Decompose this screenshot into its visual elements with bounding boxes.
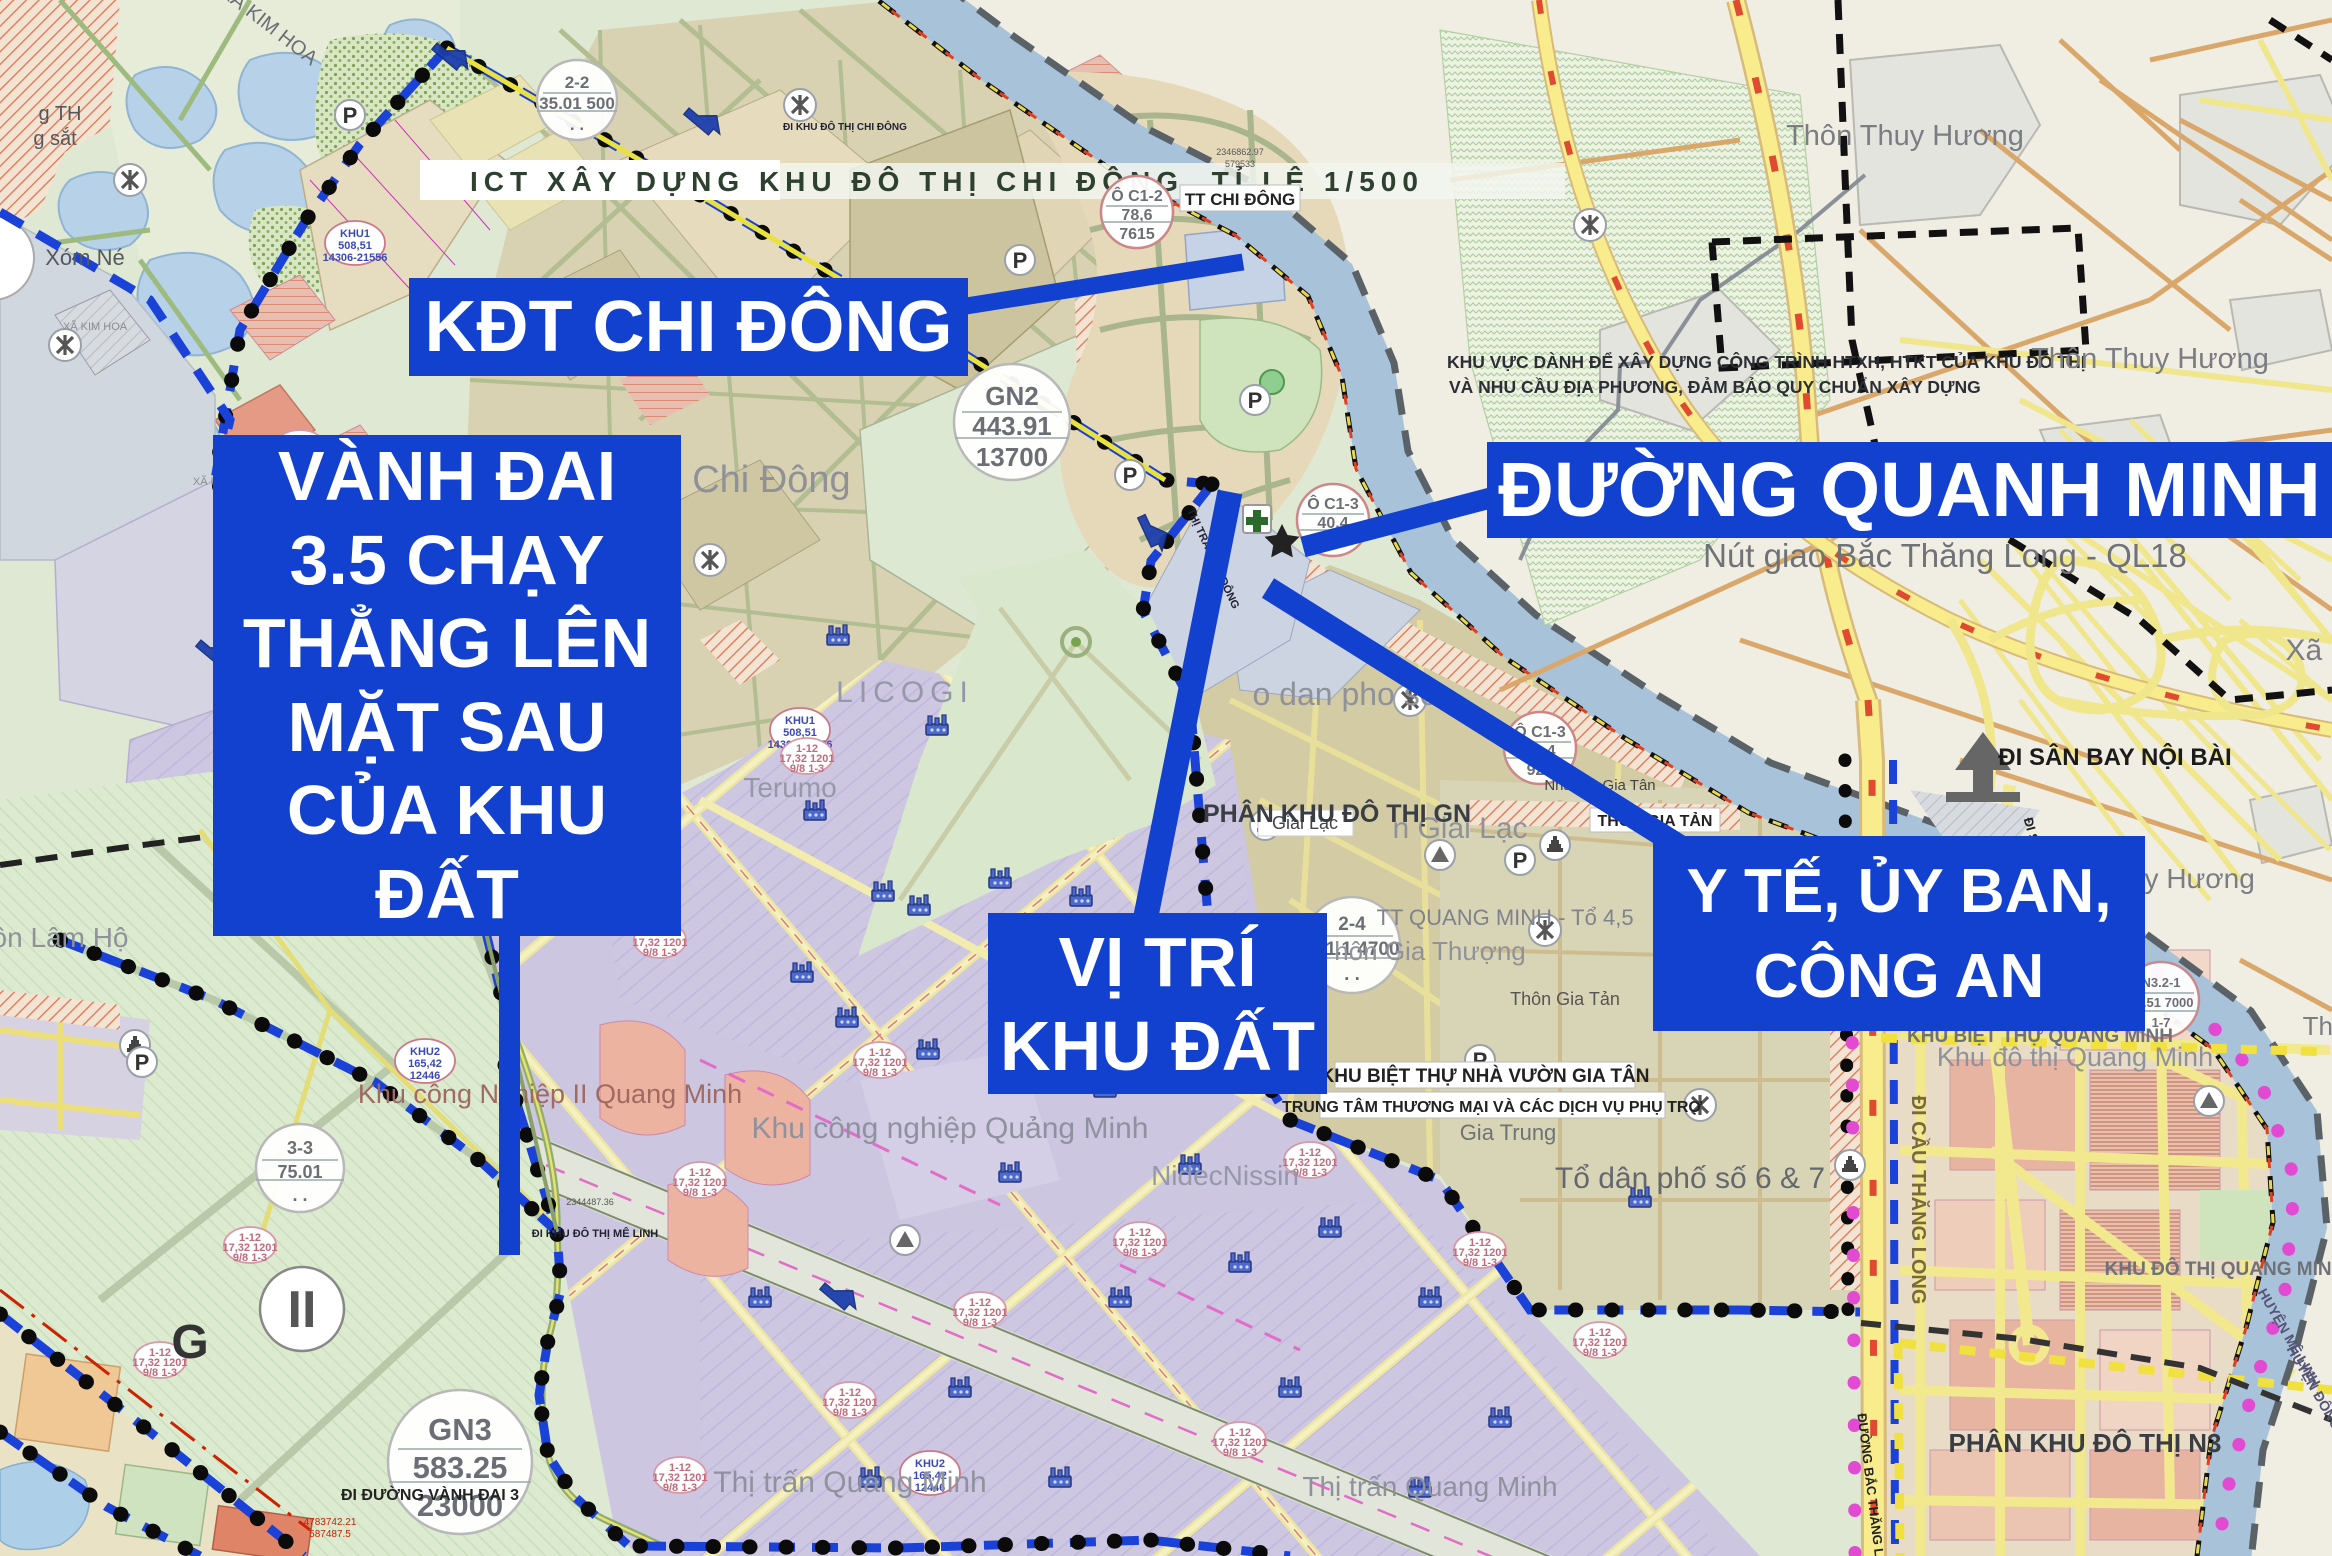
svg-text:Xã P: Xã P: [2285, 634, 2332, 667]
svg-text:9/8 1-3: 9/8 1-3: [963, 1317, 997, 1329]
svg-text:Thôn Thuy Hương: Thôn Thuy Hương: [2031, 343, 2269, 375]
svg-text:2346862.97: 2346862.97: [1216, 147, 1264, 157]
svg-text:508,51: 508,51: [783, 727, 817, 739]
svg-text:XÃ KIM HOA: XÃ KIM HOA: [63, 320, 128, 333]
svg-text:VÀ NHU CẦU ĐỊA PHƯƠNG, ĐẢM BẢO: VÀ NHU CẦU ĐỊA PHƯƠNG, ĐẢM BẢO QUY CHUẨN…: [1449, 376, 1981, 397]
svg-text:hôn Gia Thượng: hôn Gia Thượng: [1334, 936, 1526, 966]
svg-text:2344487.36: 2344487.36: [566, 1197, 614, 1207]
svg-text:9/8 1-3: 9/8 1-3: [663, 1482, 697, 1494]
svg-text:443.91: 443.91: [972, 411, 1052, 441]
svg-text:Khu công nghiệp Quảng Minh: Khu công nghiệp Quảng Minh: [752, 1112, 1149, 1145]
svg-text:KHU1: KHU1: [785, 715, 815, 727]
svg-text:KHU VỰC DÀNH ĐỂ XÂY DỰNG CÔNG: KHU VỰC DÀNH ĐỂ XÂY DỰNG CÔNG TRÌNH HTXH…: [1447, 351, 2086, 372]
svg-text:14306-21556: 14306-21556: [323, 252, 388, 264]
svg-text:9/8 1-3: 9/8 1-3: [833, 1407, 867, 1419]
svg-text:G: G: [171, 1316, 208, 1369]
svg-text:579533: 579533: [1225, 159, 1255, 169]
svg-text:Khu công Nghiệp II Quang Minh: Khu công Nghiệp II Quang Minh: [358, 1079, 742, 1109]
svg-text:KHU1: KHU1: [340, 228, 370, 240]
svg-text:Khu đô thị Quang Minh: Khu đô thị Quang Minh: [1937, 1042, 2213, 1072]
svg-text:LICOGI: LICOGI: [836, 676, 974, 709]
svg-text:165,42: 165,42: [408, 1058, 442, 1070]
svg-text:ĐI ĐƯỜNG VÀNH ĐAI 3: ĐI ĐƯỜNG VÀNH ĐAI 3: [341, 1485, 519, 1504]
svg-text:ĐI KHU ĐÔ THỊ MÊ LINH: ĐI KHU ĐÔ THỊ MÊ LINH: [532, 1227, 659, 1240]
svg-text:PHÂN KHU ĐÔ THỊ N3: PHÂN KHU ĐÔ THỊ N3: [1948, 1428, 2221, 1458]
svg-text:Ô C1-3: Ô C1-3: [1307, 494, 1359, 513]
svg-text:9/8 1-3: 9/8 1-3: [863, 1067, 897, 1079]
svg-text:Ô C1-2: Ô C1-2: [1111, 186, 1163, 205]
svg-text:Thô: Thô: [2303, 1011, 2332, 1041]
svg-text:ĐI SÂN BAY NỘI BÀI: ĐI SÂN BAY NỘI BÀI: [1998, 743, 2231, 771]
svg-text:KHU2: KHU2: [410, 1046, 440, 1058]
svg-text:9/8 1-3: 9/8 1-3: [1463, 1257, 1497, 1269]
svg-text:N3.2-1: N3.2-1: [2141, 975, 2180, 990]
svg-text:583.25: 583.25: [413, 1450, 508, 1485]
svg-text:. .: . .: [570, 115, 584, 134]
svg-text:ĐI KHU ĐÔ THỊ CHI ĐÔNG: ĐI KHU ĐÔ THỊ CHI ĐÔNG: [783, 120, 907, 133]
svg-text:TRUNG TÂM THƯƠNG MẠI VÀ CÁC DỊ: TRUNG TÂM THƯƠNG MẠI VÀ CÁC DỊCH VỤ PHỤ …: [1282, 1097, 1702, 1116]
svg-text:Thôn Thuy Hương: Thôn Thuy Hương: [1786, 120, 2024, 152]
svg-text:Gia Trung: Gia Trung: [1460, 1120, 1557, 1145]
svg-text:Nút giao Bắc Thăng Long - QL18: Nút giao Bắc Thăng Long - QL18: [1703, 537, 2187, 574]
svg-text:. .: . .: [292, 1185, 307, 1205]
svg-text:9/8 1-3: 9/8 1-3: [1223, 1447, 1257, 1459]
svg-text:TT CHI ĐÔNG: TT CHI ĐÔNG: [1185, 190, 1296, 209]
svg-text:Terumo: Terumo: [743, 772, 836, 803]
svg-text:4783742.21: 4783742.21: [304, 1517, 357, 1528]
svg-text:Tổ dân phố số 6 & 7: Tổ dân phố số 6 & 7: [1555, 1162, 1825, 1195]
svg-text:KHU ĐÔ THỊ QUANG MINH: KHU ĐÔ THỊ QUANG MINH: [2105, 1258, 2332, 1280]
svg-text:Thị trấn Quang Minh: Thị trấn Quang Minh: [713, 1466, 986, 1499]
svg-text:TT QUANG MINH - Tổ 4,5: TT QUANG MINH - Tổ 4,5: [1376, 905, 1633, 930]
svg-text:13700: 13700: [976, 442, 1048, 472]
svg-text:NidecNissin: NidecNissin: [1151, 1160, 1299, 1191]
svg-text:II: II: [288, 1281, 317, 1339]
svg-text:7615: 7615: [1119, 226, 1155, 243]
svg-text:g TH: g TH: [39, 103, 82, 125]
svg-text:508,51: 508,51: [338, 240, 372, 252]
svg-text:ĐI CẦU THĂNG LONG: ĐI CẦU THĂNG LONG: [1907, 1096, 1930, 1305]
svg-text:2-4: 2-4: [1338, 914, 1366, 935]
svg-text:PHÂN KHU ĐÔ THỊ GN: PHÂN KHU ĐÔ THỊ GN: [1203, 798, 1471, 828]
svg-text:Xóm Né: Xóm Né: [45, 245, 124, 270]
svg-text:75.01: 75.01: [277, 1162, 322, 1182]
svg-text:Thị trấn Quang Minh: Thị trấn Quang Minh: [1302, 1471, 1557, 1502]
svg-text:GN3: GN3: [428, 1412, 492, 1447]
svg-text:9/8 1-3: 9/8 1-3: [683, 1187, 717, 1199]
svg-text:9/8 1-3: 9/8 1-3: [233, 1252, 267, 1264]
svg-text:9/8 1-3: 9/8 1-3: [1123, 1247, 1157, 1259]
svg-text:GN2: GN2: [985, 381, 1038, 411]
svg-text:ôn Lâm Hộ: ôn Lâm Hộ: [0, 922, 128, 953]
svg-text:9/8 1-3: 9/8 1-3: [1583, 1347, 1617, 1359]
svg-text:g sắt: g sắt: [33, 127, 77, 150]
svg-text:9/8 1-3: 9/8 1-3: [643, 947, 677, 959]
svg-text:. .: . .: [1344, 964, 1360, 985]
svg-text:3-3: 3-3: [287, 1138, 313, 1158]
svg-text:Thôn Gia Tản: Thôn Gia Tản: [1510, 989, 1620, 1009]
svg-text:35.01 500: 35.01 500: [539, 94, 615, 113]
svg-text:KHU BIỆT THỰ NHÀ VƯỜN GIA TÂN: KHU BIỆT THỰ NHÀ VƯỜN GIA TÂN: [1321, 1065, 1650, 1087]
svg-text:587487.5: 587487.5: [309, 1529, 351, 1540]
svg-text:2-2: 2-2: [565, 73, 590, 92]
